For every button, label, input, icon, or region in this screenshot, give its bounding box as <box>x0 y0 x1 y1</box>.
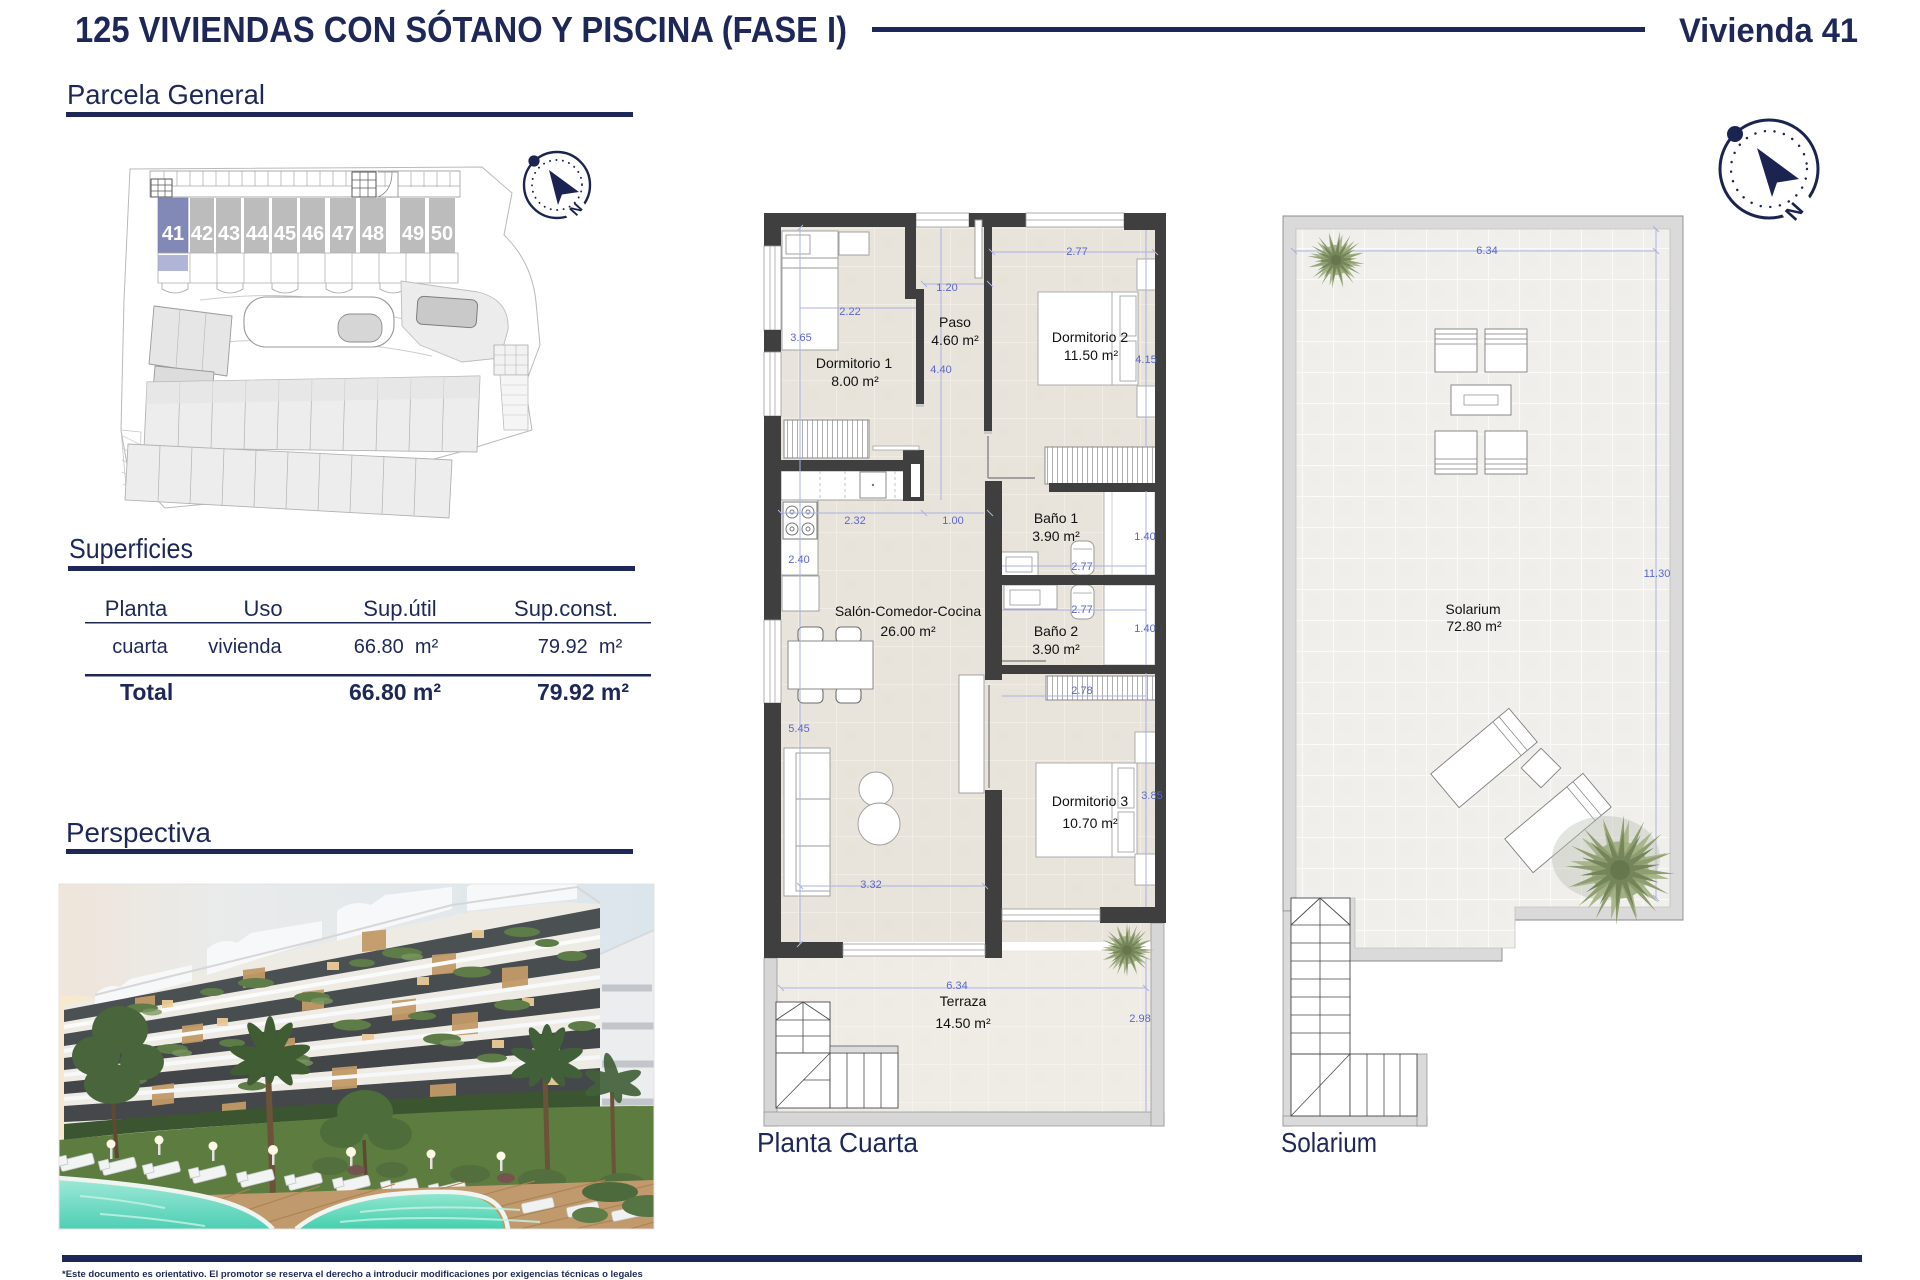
svg-text:2.77: 2.77 <box>1066 246 1087 258</box>
svg-text:Uso: Uso <box>243 596 282 621</box>
svg-text:45: 45 <box>274 223 296 245</box>
svg-text:2.98: 2.98 <box>1129 1013 1150 1025</box>
svg-text:14.50 m²: 14.50 m² <box>935 1015 991 1031</box>
svg-text:11.50 m²: 11.50 m² <box>1064 347 1119 363</box>
svg-text:2.77: 2.77 <box>1071 561 1092 573</box>
svg-text:50: 50 <box>431 223 453 245</box>
svg-text:Total: Total <box>120 679 173 705</box>
svg-text:cuarta: cuarta <box>112 636 168 658</box>
svg-text:4.15: 4.15 <box>1135 354 1156 366</box>
svg-text:3.85: 3.85 <box>1141 790 1162 802</box>
svg-text:79.92 m²: 79.92 m² <box>538 636 623 658</box>
svg-text:42: 42 <box>191 223 213 245</box>
svg-text:Salón-Comedor-Cocina: Salón-Comedor-Cocina <box>835 603 982 619</box>
svg-text:2.40: 2.40 <box>788 554 809 566</box>
svg-text:Baño 2: Baño 2 <box>1034 623 1079 639</box>
svg-text:2.77: 2.77 <box>1071 604 1092 616</box>
svg-text:Solarium: Solarium <box>1445 601 1500 617</box>
svg-text:Planta: Planta <box>105 596 168 621</box>
svg-text:2.32: 2.32 <box>844 515 865 527</box>
svg-text:Dormitorio 3: Dormitorio 3 <box>1052 793 1128 809</box>
svg-text:2.22: 2.22 <box>839 306 860 318</box>
svg-text:43: 43 <box>218 223 240 245</box>
svg-text:3.32: 3.32 <box>860 879 881 891</box>
svg-text:1.40: 1.40 <box>1134 531 1155 543</box>
svg-text:Planta Cuarta: Planta Cuarta <box>757 1127 918 1158</box>
svg-text:5.45: 5.45 <box>788 723 809 735</box>
svg-text:Vivienda 41: Vivienda 41 <box>1679 12 1858 50</box>
svg-text:49: 49 <box>402 223 424 245</box>
svg-text:11.30: 11.30 <box>1644 568 1671 580</box>
svg-text:Perspectiva: Perspectiva <box>66 817 211 848</box>
svg-text:79.92 m²: 79.92 m² <box>537 679 629 705</box>
svg-text:8.00 m²: 8.00 m² <box>831 373 879 389</box>
svg-text:72.80 m²: 72.80 m² <box>1446 618 1502 634</box>
svg-text:Dormitorio 1: Dormitorio 1 <box>816 355 892 371</box>
svg-text:48: 48 <box>362 223 384 245</box>
svg-text:66.80 m²: 66.80 m² <box>349 679 441 705</box>
svg-text:1.00: 1.00 <box>942 515 963 527</box>
svg-text:vivienda: vivienda <box>208 636 282 658</box>
svg-text:47: 47 <box>332 223 354 245</box>
svg-text:125 VIVIENDAS CON SÓTANO Y PIS: 125 VIVIENDAS CON SÓTANO Y PISCINA (FASE… <box>75 8 847 50</box>
svg-text:6.34: 6.34 <box>1476 245 1497 257</box>
svg-text:Sup.útil: Sup.útil <box>363 596 436 621</box>
svg-text:Superficies: Superficies <box>69 533 193 564</box>
svg-text:1.40: 1.40 <box>1134 623 1155 635</box>
svg-text:3.90 m²: 3.90 m² <box>1032 641 1080 657</box>
svg-text:3.65: 3.65 <box>790 332 811 344</box>
svg-text:1.20: 1.20 <box>936 282 957 294</box>
svg-text:Paso: Paso <box>939 314 971 330</box>
svg-text:3.90 m²: 3.90 m² <box>1032 528 1080 544</box>
svg-text:41: 41 <box>162 223 184 245</box>
svg-text:46: 46 <box>302 223 324 245</box>
svg-text:26.00 m²: 26.00 m² <box>880 623 936 639</box>
svg-text:6.34: 6.34 <box>946 980 967 992</box>
svg-text:Dormitorio 2: Dormitorio 2 <box>1052 329 1128 345</box>
svg-text:2.78: 2.78 <box>1071 685 1092 697</box>
svg-text:Parcela General: Parcela General <box>67 79 265 110</box>
svg-text:Sup.const.: Sup.const. <box>514 596 618 621</box>
svg-text:Baño 1: Baño 1 <box>1034 510 1079 526</box>
svg-text:10.70 m²: 10.70 m² <box>1062 815 1118 831</box>
svg-text:Solarium: Solarium <box>1281 1127 1377 1158</box>
svg-text:*Este documento es orientativo: *Este documento es orientativo. El promo… <box>62 1269 643 1280</box>
svg-text:66.80 m²: 66.80 m² <box>354 636 439 658</box>
svg-text:4.40: 4.40 <box>930 364 951 376</box>
svg-text:4.60 m²: 4.60 m² <box>931 332 979 348</box>
svg-text:Terraza: Terraza <box>940 993 987 1009</box>
svg-text:44: 44 <box>246 223 269 245</box>
